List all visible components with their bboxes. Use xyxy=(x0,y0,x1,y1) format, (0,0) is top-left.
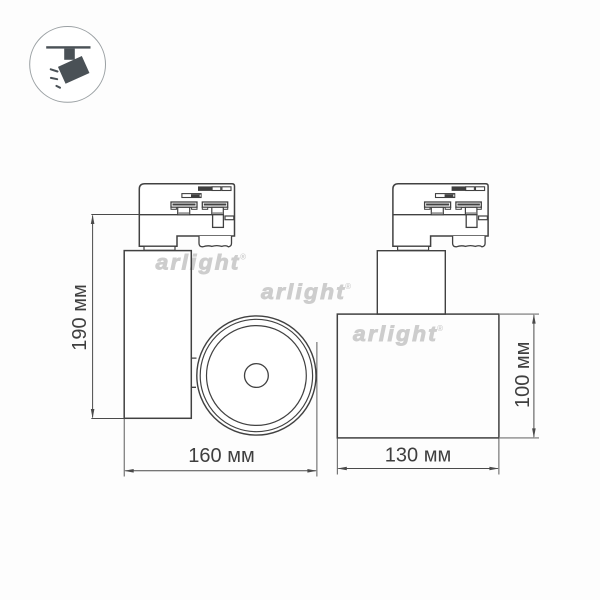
svg-text:arlight: arlight xyxy=(261,281,346,304)
svg-text:190 мм: 190 мм xyxy=(69,284,91,350)
svg-text:130 мм: 130 мм xyxy=(385,445,451,467)
svg-text:®: ® xyxy=(240,253,246,262)
svg-text:arlight: arlight xyxy=(353,323,438,346)
svg-text:®: ® xyxy=(437,324,443,333)
svg-text:®: ® xyxy=(345,282,351,291)
svg-text:arlight: arlight xyxy=(156,251,241,274)
svg-text:160 мм: 160 мм xyxy=(188,445,254,467)
svg-text:100 мм: 100 мм xyxy=(512,342,534,408)
